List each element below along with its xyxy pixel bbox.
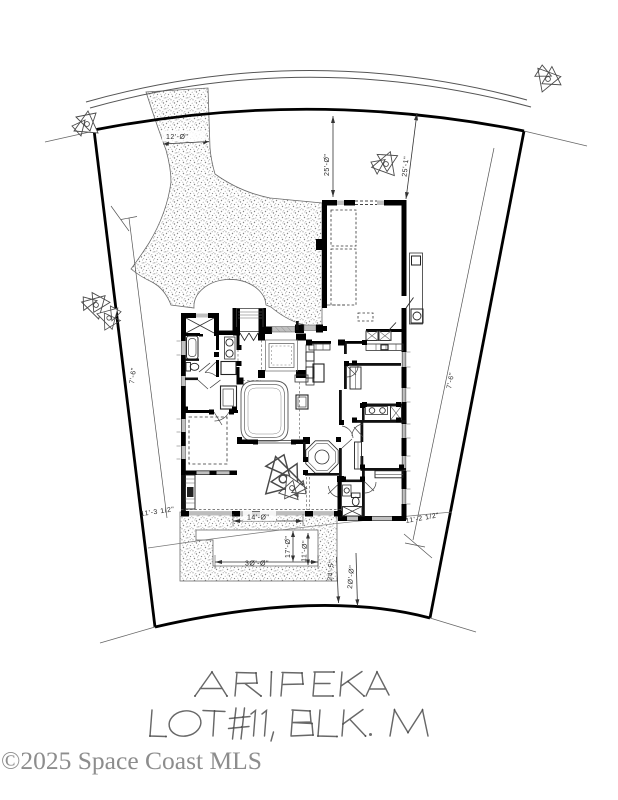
svg-text:©2025 Space Coast MLS: ©2025 Space Coast MLS bbox=[1, 746, 262, 775]
svg-text:3Ø'-Ø": 3Ø'-Ø" bbox=[245, 561, 269, 568]
svg-text:12'-Ø": 12'-Ø" bbox=[166, 134, 188, 141]
svg-text:25'-Ø": 25'-Ø" bbox=[324, 154, 331, 176]
svg-text:14'-Ø": 14'-Ø" bbox=[247, 515, 269, 522]
svg-text:17'-Ø": 17'-Ø" bbox=[285, 536, 292, 558]
svg-text:11'-Ø": 11'-Ø" bbox=[301, 540, 309, 562]
